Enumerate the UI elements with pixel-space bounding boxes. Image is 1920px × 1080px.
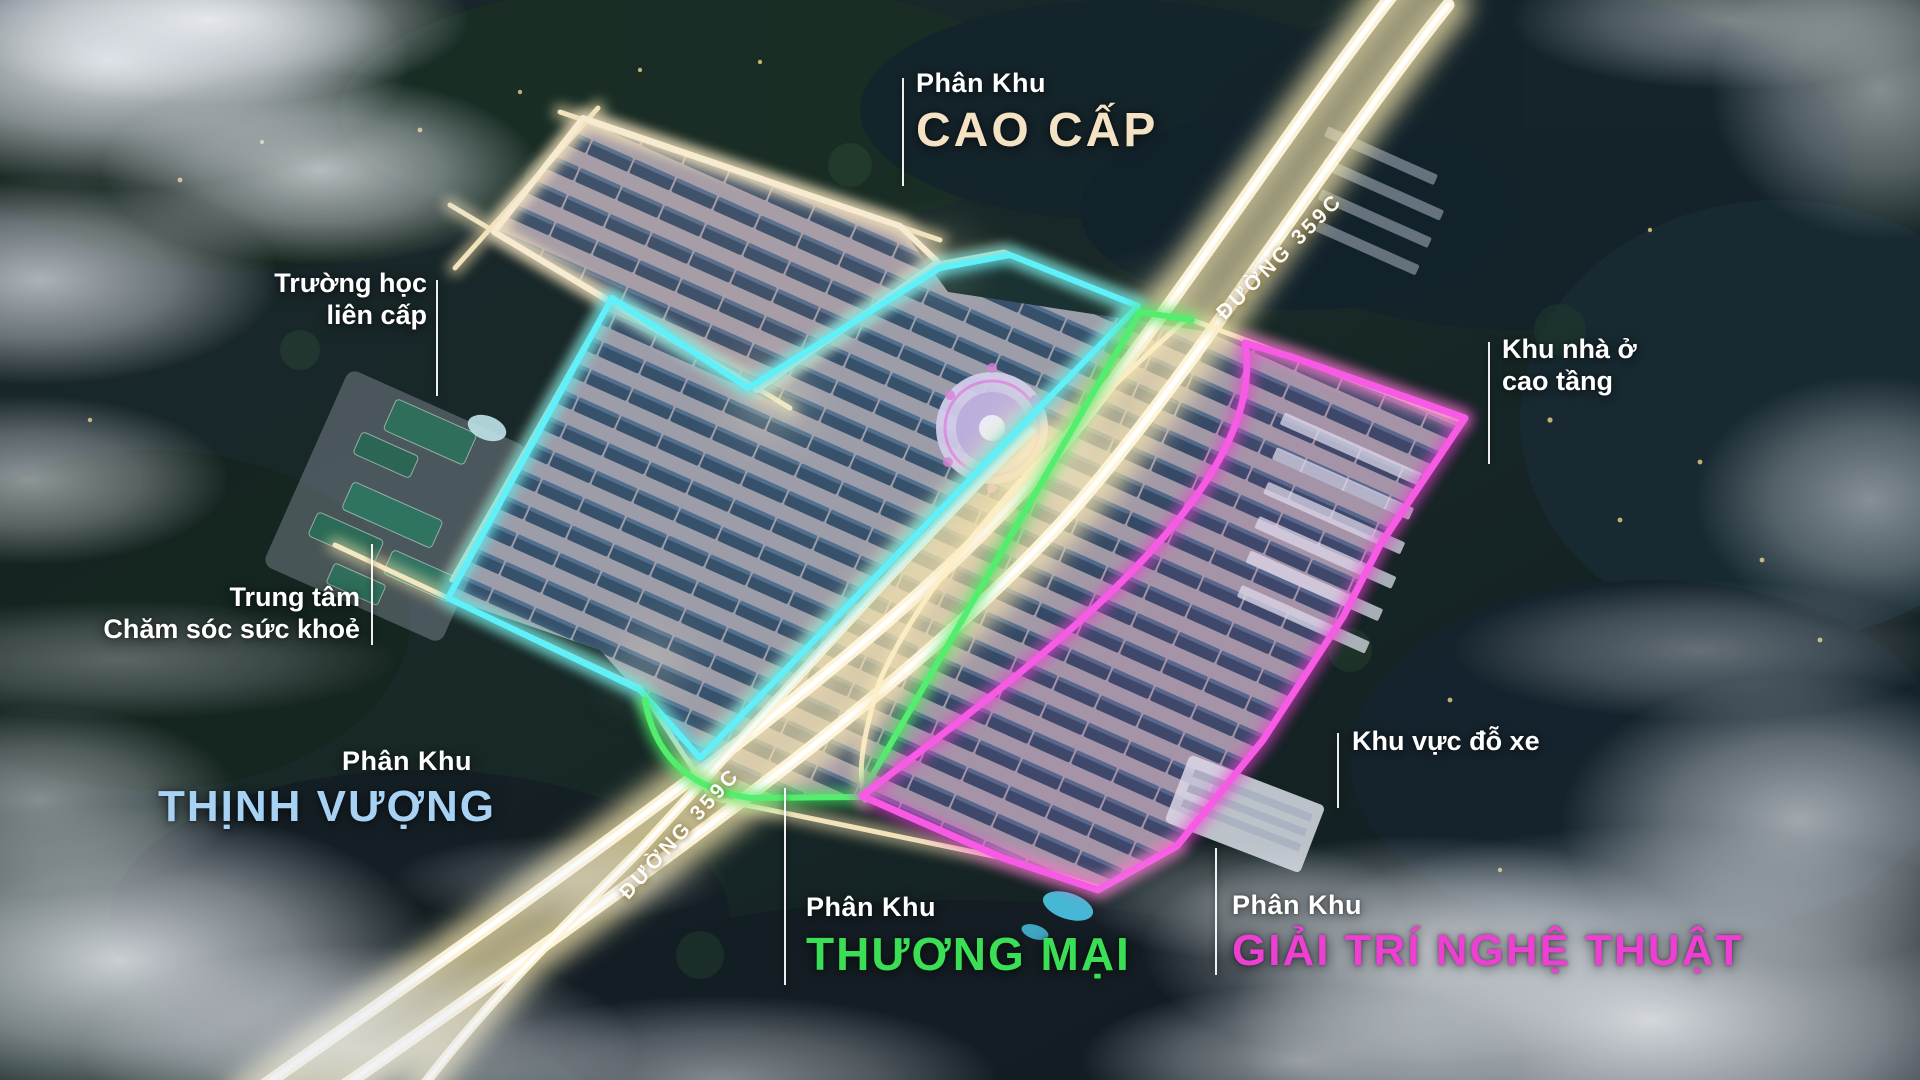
leader-line-premium [902,78,904,186]
healthcare-label-line1: Trung tâm [58,582,360,614]
zone-label-entertainment: Phân Khu GIẢI TRÍ NGHỆ THUẬT [1232,890,1744,977]
zone-label-premium: Phân Khu CAO CẤP [916,68,1158,159]
parking-label-line1: Khu vực đỗ xe [1352,726,1540,758]
zone-label-commerce: Phân Khu THƯƠNG MẠI [806,892,1131,981]
zone-name-commerce: THƯƠNG MẠI [806,927,1131,981]
zone-name-premium: CAO CẤP [916,103,1158,160]
highrise-label-line1: Khu nhà ở [1502,334,1637,366]
leader-line-healthcare [371,544,373,645]
leader-line-parking [1337,733,1339,808]
leader-line-highrise [1488,342,1490,464]
healthcare-label-line2: Chăm sóc sức khoẻ [58,614,360,646]
highrise-label-line2: cao tầng [1502,366,1637,398]
zone-name-entertainment: GIẢI TRÍ NGHỆ THUẬT [1232,925,1744,977]
school-label-line1: Trường học [165,268,427,300]
zone-label-prosperity: Phân Khu THỊNH VƯỢNG [158,746,472,833]
amenity-label-parking: Khu vực đỗ xe [1352,726,1540,758]
amenity-label-highrise: Khu nhà ở cao tầng [1502,334,1637,398]
zone-kicker: Phân Khu [1232,890,1744,922]
leader-line-school [436,280,438,396]
leader-line-commerce [784,788,786,985]
zone-name-prosperity: THỊNH VƯỢNG [158,781,472,833]
zone-kicker: Phân Khu [806,892,1131,924]
amenity-label-school: Trường học liên cấp [165,268,427,332]
zone-kicker: Phân Khu [916,68,1158,100]
zone-kicker: Phân Khu [158,746,472,778]
amenity-label-healthcare: Trung tâm Chăm sóc sức khoẻ [58,582,360,646]
leader-line-entertainment [1215,848,1217,975]
school-label-line2: liên cấp [165,300,427,332]
masterplan-scene: Phân Khu CAO CẤP Trường học liên cấp Tru… [0,0,1920,1080]
